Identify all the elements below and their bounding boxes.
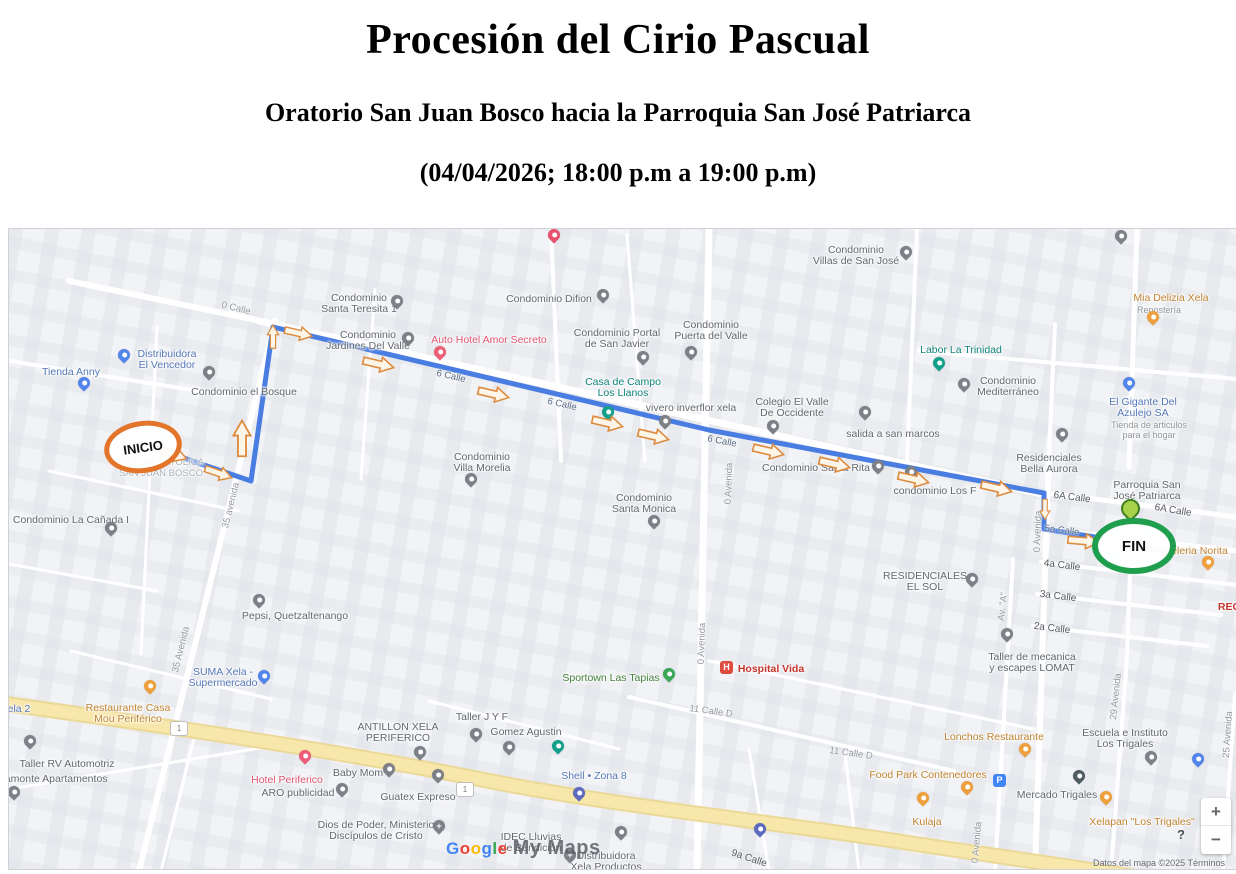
flyer-header: Procesión del Cirio Pascual Oratorio San… [0,0,1236,226]
zoom-in-button[interactable]: + [1201,798,1231,826]
route-direction-arrow [897,468,931,490]
page-title: Procesión del Cirio Pascual [0,0,1236,64]
help-button[interactable]: ? [1177,827,1185,842]
route-direction-arrow [818,453,852,475]
route-direction-arrow [477,383,511,405]
route-direction-arrow [591,412,625,434]
route-direction-arrow [362,353,396,375]
route-direction-arrow [283,323,313,342]
route-subtitle: Oratorio San Juan Bosco hacia la Parroqu… [0,98,1236,128]
route-direction-arrow [752,440,786,462]
route-direction-arrow [233,421,250,457]
route-direction-arrow [980,477,1014,499]
schedule-line: (04/04/2026; 18:00 p.m a 19:00 p.m) [0,158,1236,188]
route-arrow-layer [9,229,1236,869]
route-end-label: FIN [1122,538,1146,555]
google-my-maps-watermark[interactable]: GoogleMy Maps [446,837,601,860]
my-maps-label: My Maps [513,837,601,859]
google-logo[interactable]: Google [446,839,508,858]
zoom-control[interactable]: + − [1201,798,1231,854]
map-canvas[interactable]: 0 Calle35 avenida6 Calle6 Calle6 Calle0 … [8,228,1236,870]
route-direction-arrow [267,325,278,348]
zoom-out-button[interactable]: − [1201,826,1231,853]
route-direction-arrow [203,462,234,484]
route-direction-arrow [1040,499,1050,519]
route-end-marker: FIN [1092,518,1176,574]
route-start-label: INICIO [122,437,163,457]
route-direction-arrow [637,425,671,447]
map-attribution[interactable]: Datos del mapa ©2025 Términos [1093,858,1225,868]
